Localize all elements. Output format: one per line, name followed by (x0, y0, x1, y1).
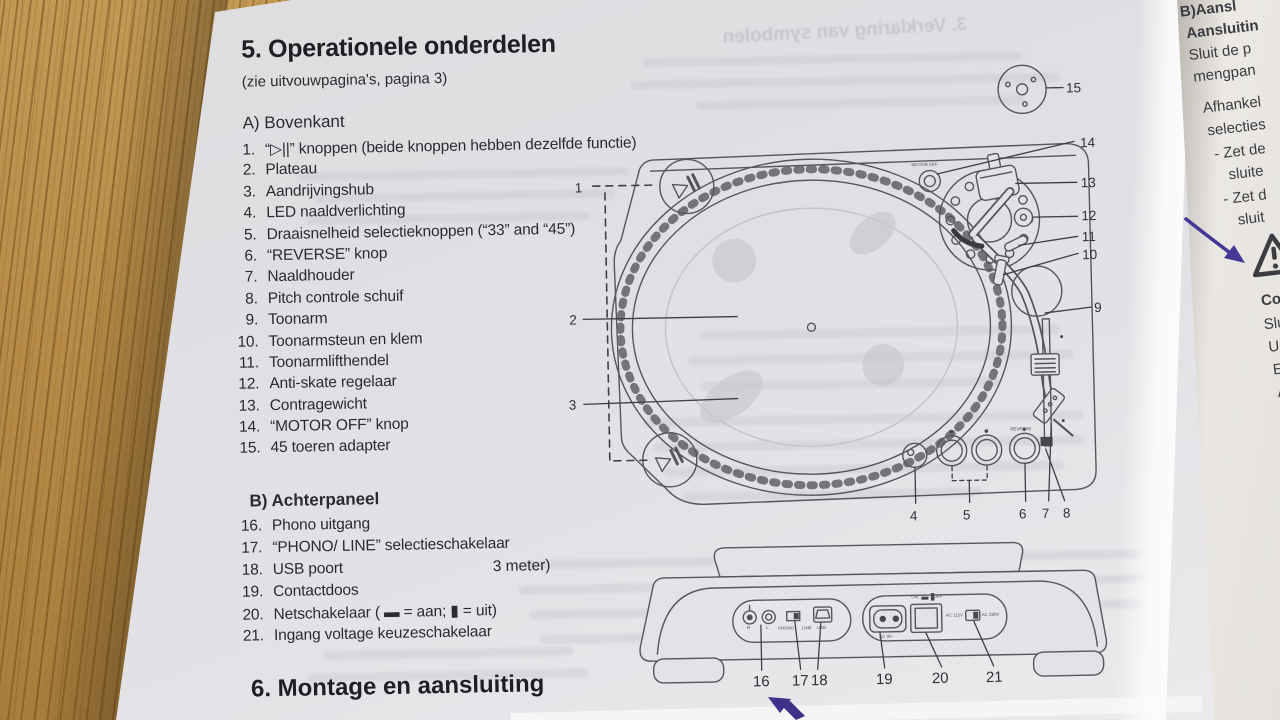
next-page-fragment: Alg (1277, 382, 1280, 401)
on-symbol (921, 597, 928, 600)
lift-lever (1003, 235, 1028, 253)
usb-port (814, 607, 832, 622)
speed-button-33 (936, 430, 967, 466)
play-pause-button-bottom (642, 432, 697, 487)
callout-number: 17 (792, 672, 809, 689)
callout-number: 16 (753, 673, 770, 690)
callout-1-dashed-line (593, 185, 659, 462)
voltage-115-label: AC 115V (946, 612, 963, 617)
voltage-selector (966, 610, 980, 620)
callout-number: 1 (575, 180, 583, 195)
callout-number: 4 (910, 508, 918, 523)
callout-number: 3 (569, 398, 577, 413)
next-page-fragment: Aansluitin (1185, 17, 1259, 42)
next-page-fragment: sluit (1237, 209, 1265, 229)
speed-button-45 (971, 429, 1002, 465)
callout-lines (578, 87, 1094, 509)
next-page-fragment: USB (1267, 336, 1280, 356)
phono-line-switch (787, 611, 800, 620)
usb-label: USB (817, 625, 826, 630)
reverse-button (1009, 427, 1040, 463)
callout-number: 20 (932, 670, 949, 687)
next-page-fragment: Een (1272, 359, 1280, 379)
callout-number: 7 (1042, 506, 1050, 521)
next-page-fragment: - Zet de (1213, 140, 1266, 163)
on-label: ON (911, 594, 918, 599)
play-pause-button-top (659, 159, 714, 214)
callout-number: 13 (1081, 175, 1096, 190)
next-page-fragment: Sluit de p (1188, 40, 1252, 64)
next-page-fragment: Com (1260, 289, 1280, 310)
callout-number: 5 (963, 507, 971, 522)
foot-left (653, 658, 723, 683)
motor-off-label: MOTOR OFF (911, 162, 937, 167)
warning-triangle-icon (1248, 230, 1280, 279)
cartridge (1032, 387, 1065, 424)
callout-number: 15 (1066, 80, 1081, 95)
voltage-230-label: AC 230V (982, 612, 1000, 617)
next-page-fragment: mengpan (1192, 62, 1256, 86)
phono-label: PHONO (778, 626, 794, 631)
rca-r-label: R (747, 625, 750, 630)
next-page-fragment: sluite (1228, 162, 1265, 183)
next-page-fragment: selecties (1207, 116, 1267, 139)
callout-number: 21 (986, 669, 1003, 686)
callout-number: 11 (1082, 229, 1096, 244)
callout-number: 12 (1081, 208, 1096, 223)
rca-l-label: L (766, 625, 769, 630)
foot-right (1033, 651, 1103, 676)
off-label: OFF (933, 594, 942, 599)
reverse-label: REVERSE (1010, 426, 1031, 431)
callout-number: 2 (569, 313, 577, 328)
callout-number: 19 (876, 671, 893, 688)
turntable-top-view (578, 64, 1097, 509)
next-page-fragment: Afhankel (1202, 93, 1262, 116)
line-label: LINE (802, 625, 812, 630)
next-page-fragment: B)Aansl (1179, 0, 1237, 21)
callout-number: 8 (1063, 506, 1071, 521)
callout-number: 18 (811, 672, 828, 689)
callout-number: 9 (1094, 300, 1102, 315)
callout-number: 14 (1080, 135, 1095, 150)
ac-inlet (870, 606, 906, 633)
photo-of-manual-page: 3. Verklaring van symbolen 5. Op (0, 0, 1280, 720)
callout-number: 6 (1019, 506, 1027, 521)
anti-skate-dial (1014, 208, 1032, 226)
callout-5-bracket (952, 466, 987, 481)
45-adapter (998, 65, 1047, 114)
next-page-fragment: Sluit (1263, 313, 1280, 333)
turntable-rear-view (638, 541, 1107, 684)
callout-number: 10 (1082, 247, 1097, 262)
next-page-fragment: - Zet d (1222, 186, 1267, 208)
ac-in-label: AC IN~ (879, 634, 893, 639)
